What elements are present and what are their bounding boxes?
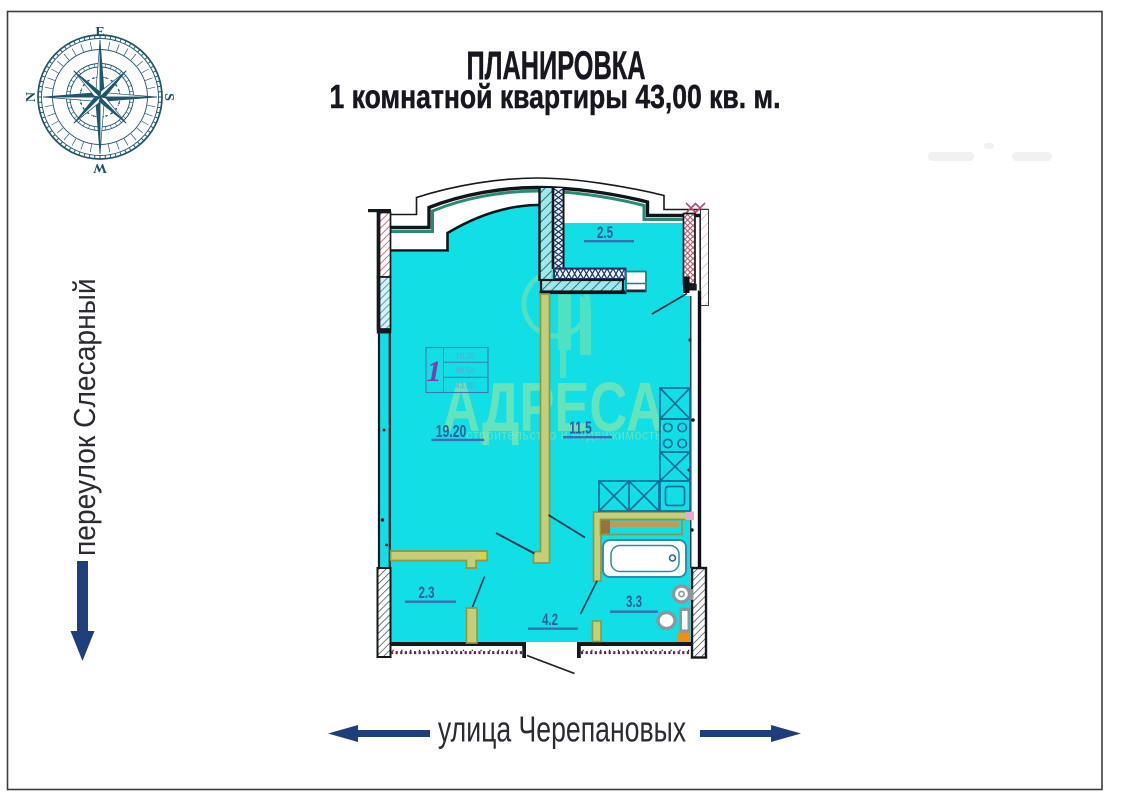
- svg-text:3.3: 3.3: [626, 593, 642, 612]
- svg-text:E: E: [95, 25, 104, 40]
- svg-text:W: W: [93, 160, 107, 175]
- svg-text:19.20: 19.20: [436, 422, 467, 442]
- svg-text:строительство и недвижимость: строительство и недвижимость: [466, 427, 662, 443]
- svg-text:10.20: 10.20: [455, 352, 475, 361]
- svg-text:2.3: 2.3: [418, 584, 434, 603]
- svg-text:переулок Слесарный: переулок Слесарный: [68, 278, 103, 556]
- svg-text:1 комнатной квартиры 43,00 кв.: 1 комнатной квартиры 43,00 кв. м.: [329, 79, 780, 115]
- svg-text:1: 1: [427, 355, 442, 388]
- svg-text:40.50: 40.50: [455, 366, 475, 375]
- svg-text:N: N: [24, 92, 39, 102]
- svg-text:улица Черепановых: улица Черепановых: [438, 709, 686, 750]
- svg-text:43.00: 43.00: [455, 381, 475, 390]
- svg-text:S: S: [161, 93, 176, 101]
- svg-text:2.5: 2.5: [597, 224, 613, 243]
- svg-text:11.5: 11.5: [569, 418, 591, 438]
- svg-text:4.2: 4.2: [542, 611, 558, 630]
